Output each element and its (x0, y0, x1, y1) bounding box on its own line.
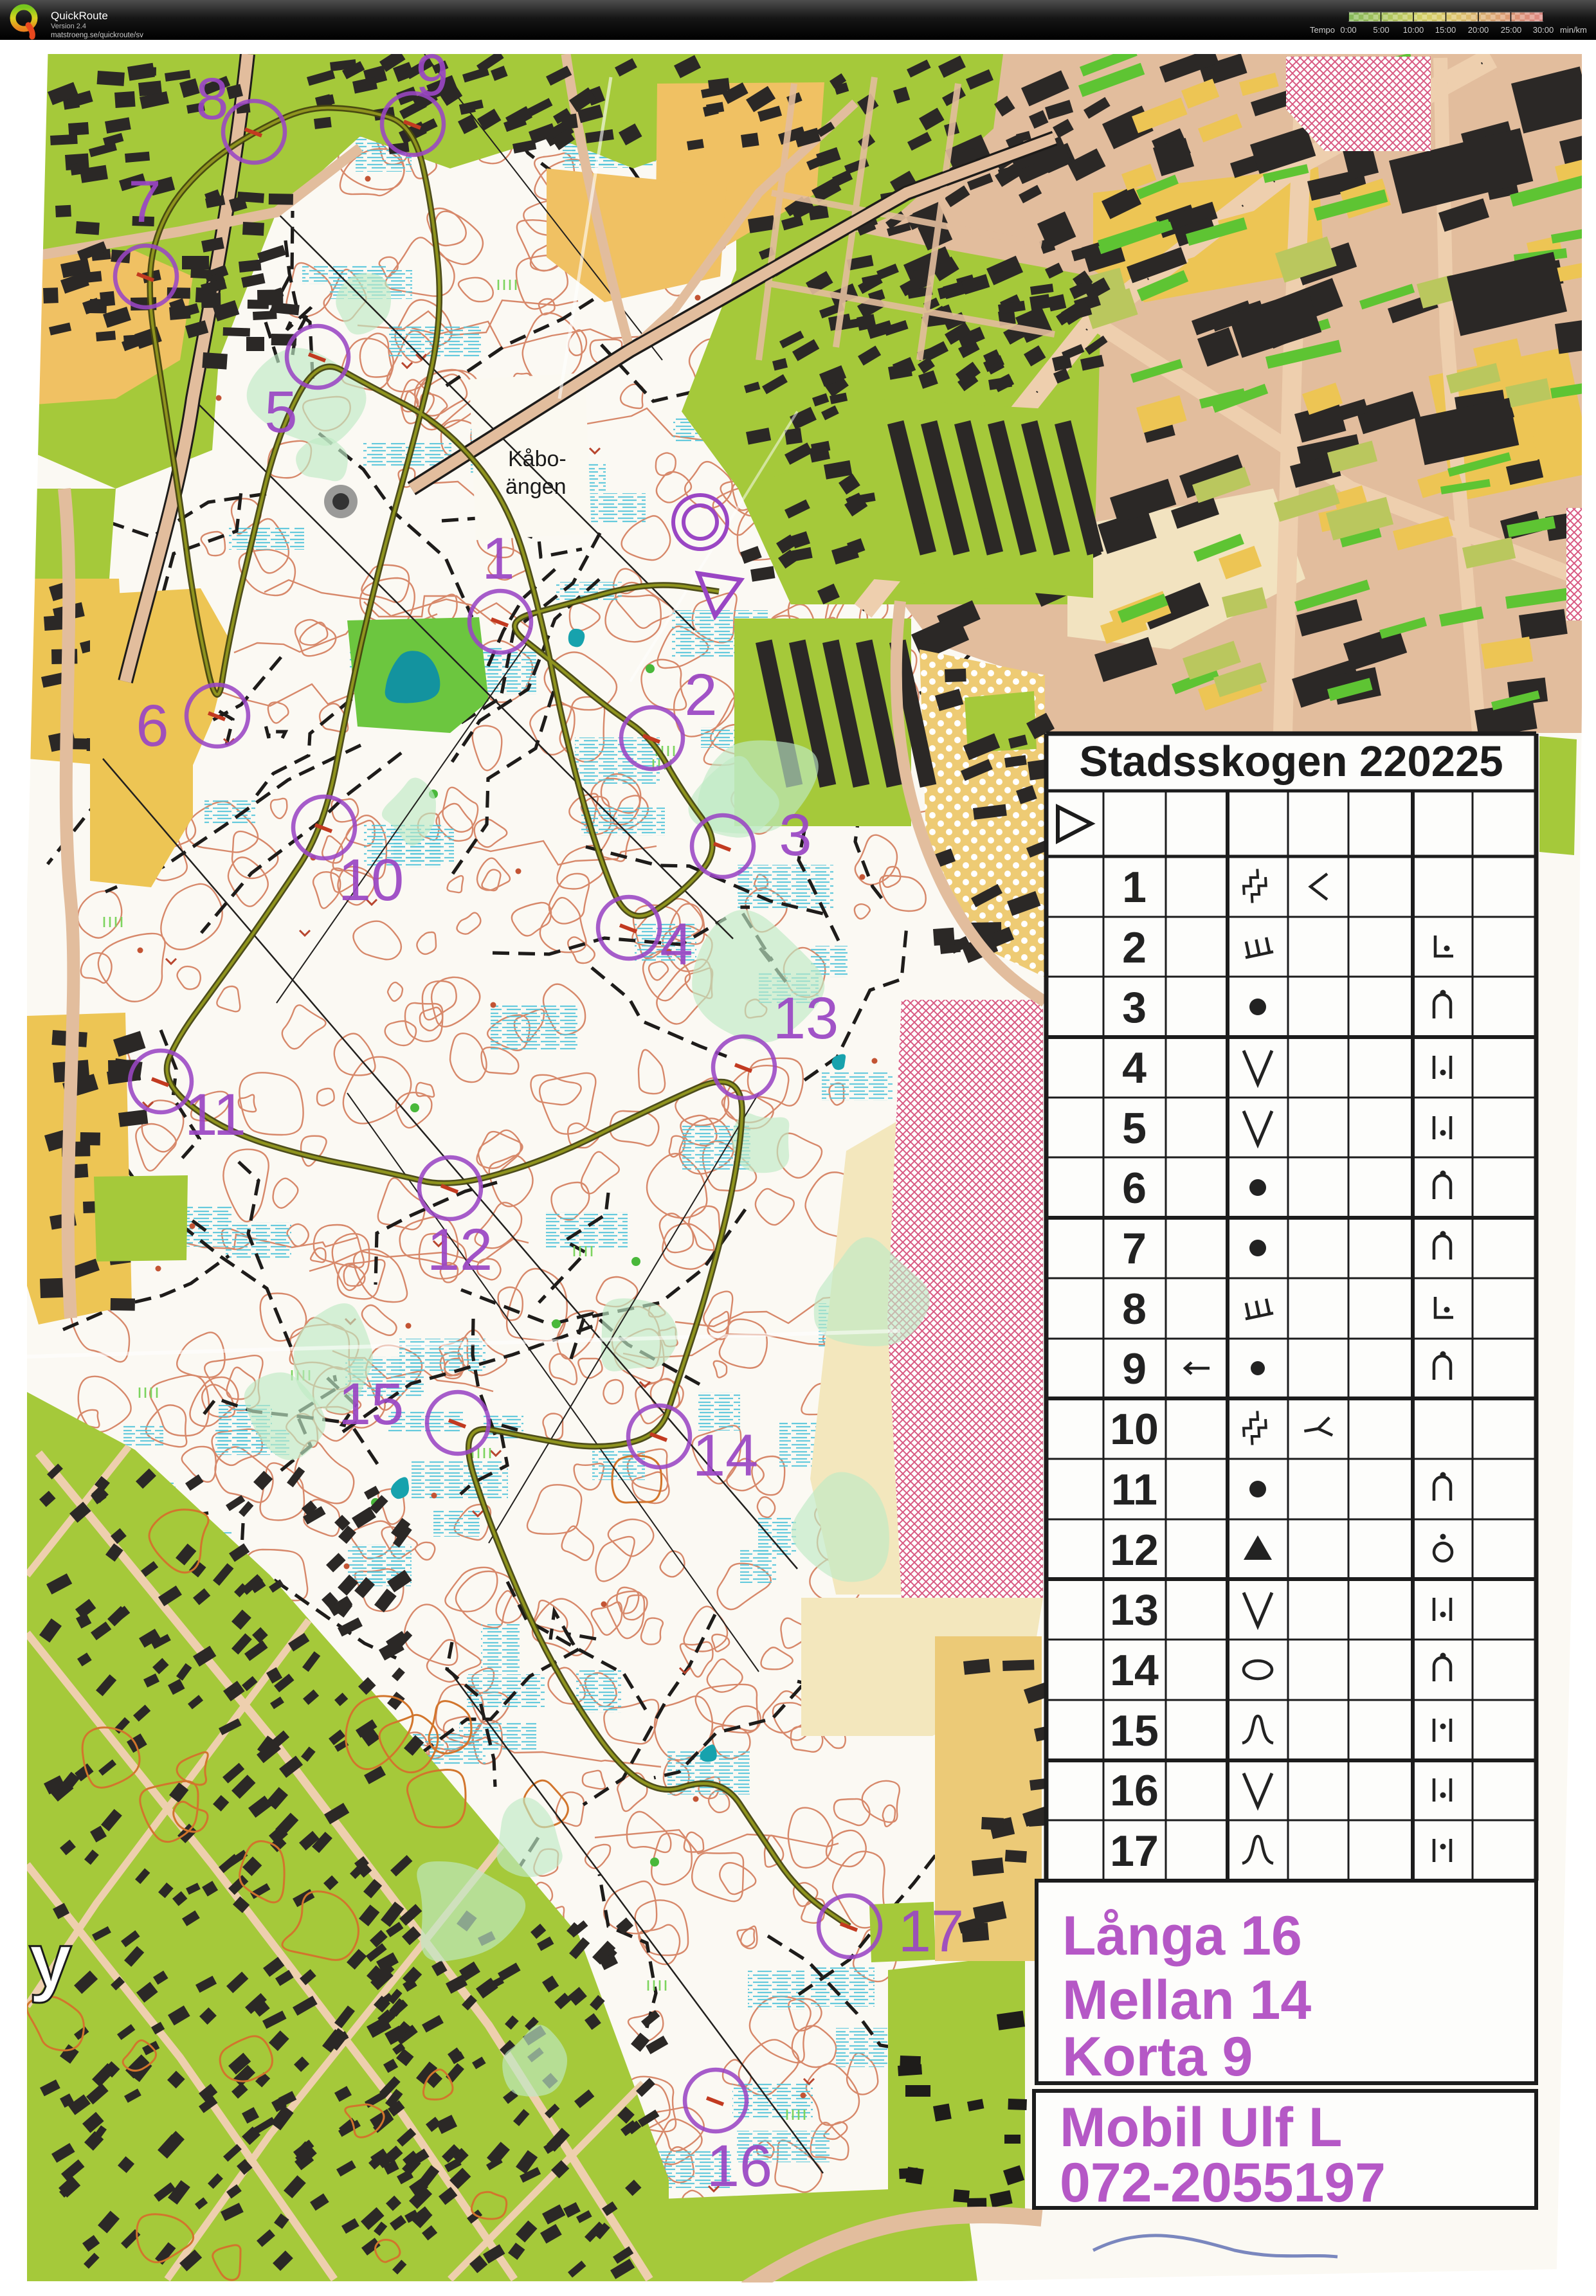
svg-text:11: 11 (185, 1082, 246, 1148)
svg-text:7: 7 (128, 169, 161, 235)
svg-text:Korta 9: Korta 9 (1062, 2026, 1253, 2088)
svg-text:10: 10 (1110, 1405, 1159, 1454)
svg-text:QuickRoute: QuickRoute (51, 10, 108, 22)
svg-text:5: 5 (264, 379, 297, 445)
svg-text:13: 13 (773, 986, 839, 1051)
svg-text:Stadsskogen 220225: Stadsskogen 220225 (1079, 737, 1503, 786)
svg-text:Tempo: Tempo (1310, 25, 1335, 35)
svg-text:15: 15 (338, 1371, 404, 1437)
svg-text:7: 7 (1122, 1224, 1147, 1273)
svg-text:ängen: ängen (505, 475, 567, 499)
svg-text:15:00: 15:00 (1435, 25, 1456, 35)
svg-text:matstroeng.se/quickroute/sv: matstroeng.se/quickroute/sv (51, 32, 143, 39)
svg-text:6: 6 (1122, 1164, 1147, 1213)
svg-text:4: 4 (1122, 1044, 1147, 1092)
svg-text:Mobil Ulf L: Mobil Ulf L (1060, 2097, 1342, 2158)
svg-text:2: 2 (1122, 923, 1147, 972)
svg-text:min/km: min/km (1560, 25, 1587, 35)
svg-text:5:00: 5:00 (1373, 25, 1389, 35)
svg-text:3: 3 (1122, 983, 1147, 1032)
svg-text:15: 15 (1110, 1706, 1159, 1755)
svg-text:Mellan 14: Mellan 14 (1062, 1969, 1311, 2031)
svg-text:3: 3 (779, 802, 812, 868)
svg-text:14: 14 (693, 1423, 758, 1488)
svg-text:20:00: 20:00 (1468, 25, 1489, 35)
svg-text:9: 9 (1122, 1344, 1147, 1393)
svg-text:17: 17 (1110, 1827, 1159, 1876)
svg-text:6: 6 (136, 693, 168, 759)
svg-text:4: 4 (660, 912, 693, 977)
svg-text:072-2055197: 072-2055197 (1060, 2152, 1386, 2214)
svg-text:11: 11 (1111, 1465, 1157, 1514)
svg-text:16: 16 (707, 2133, 772, 2199)
svg-text:12: 12 (1110, 1526, 1159, 1575)
svg-text:16: 16 (1110, 1766, 1159, 1815)
svg-text:30:00: 30:00 (1533, 25, 1554, 35)
svg-text:5: 5 (1122, 1104, 1147, 1153)
svg-text:Långa 16: Långa 16 (1062, 1905, 1302, 1967)
svg-text:2: 2 (684, 662, 717, 728)
svg-text:y: y (29, 1917, 72, 2003)
svg-text:14: 14 (1110, 1646, 1159, 1695)
svg-text:1: 1 (1122, 863, 1147, 912)
svg-text:1: 1 (482, 526, 514, 592)
svg-text:10:00: 10:00 (1403, 25, 1424, 35)
svg-text:13: 13 (1110, 1586, 1159, 1634)
svg-text:Kåbo-: Kåbo- (508, 447, 567, 471)
svg-text:25:00: 25:00 (1501, 25, 1522, 35)
svg-text:Version 2.4: Version 2.4 (51, 23, 86, 30)
svg-text:10: 10 (338, 847, 404, 913)
svg-text:8: 8 (195, 66, 228, 132)
svg-text:12: 12 (427, 1217, 493, 1283)
svg-text:8: 8 (1122, 1285, 1147, 1333)
svg-text:17: 17 (898, 1899, 964, 1964)
svg-text:0:00: 0:00 (1340, 25, 1356, 35)
